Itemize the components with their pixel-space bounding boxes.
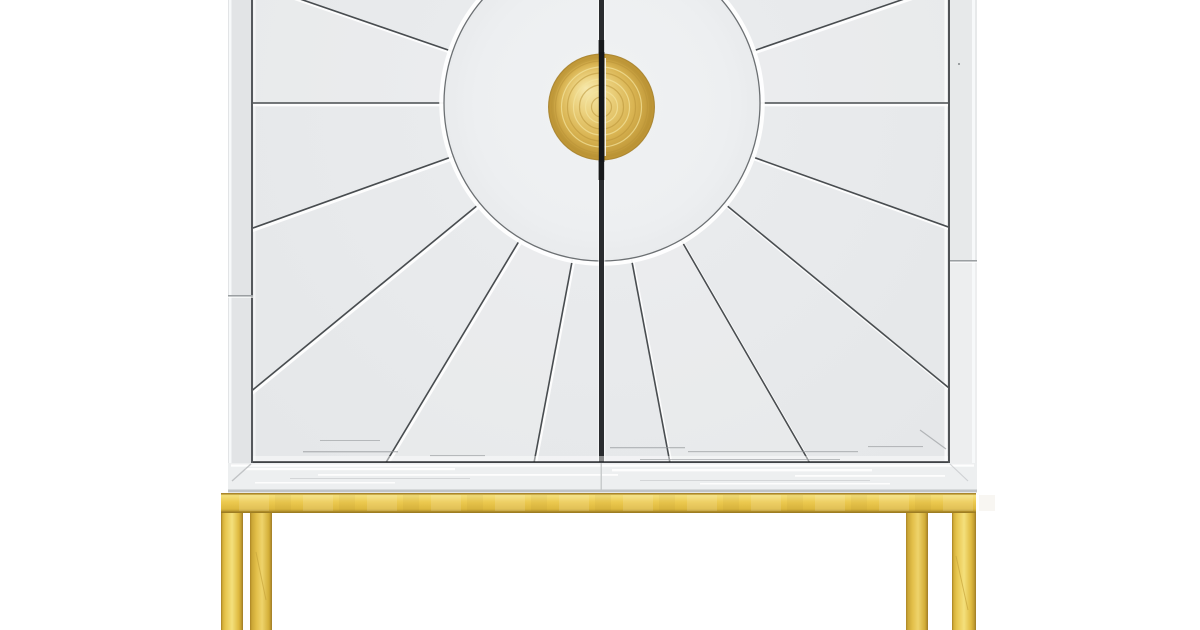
door-handle <box>549 52 655 162</box>
base-frame <box>221 493 995 630</box>
product-photo: Product photo: Art Deco style bar cabine… <box>0 0 1200 630</box>
cabinet-photo-svg <box>0 0 1200 630</box>
